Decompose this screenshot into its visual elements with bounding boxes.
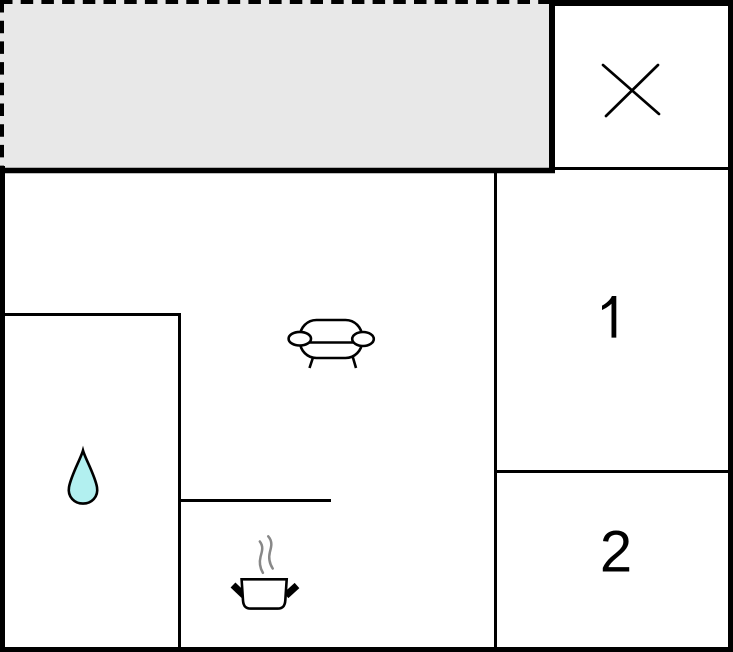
svg-text:2: 2 xyxy=(600,520,632,585)
